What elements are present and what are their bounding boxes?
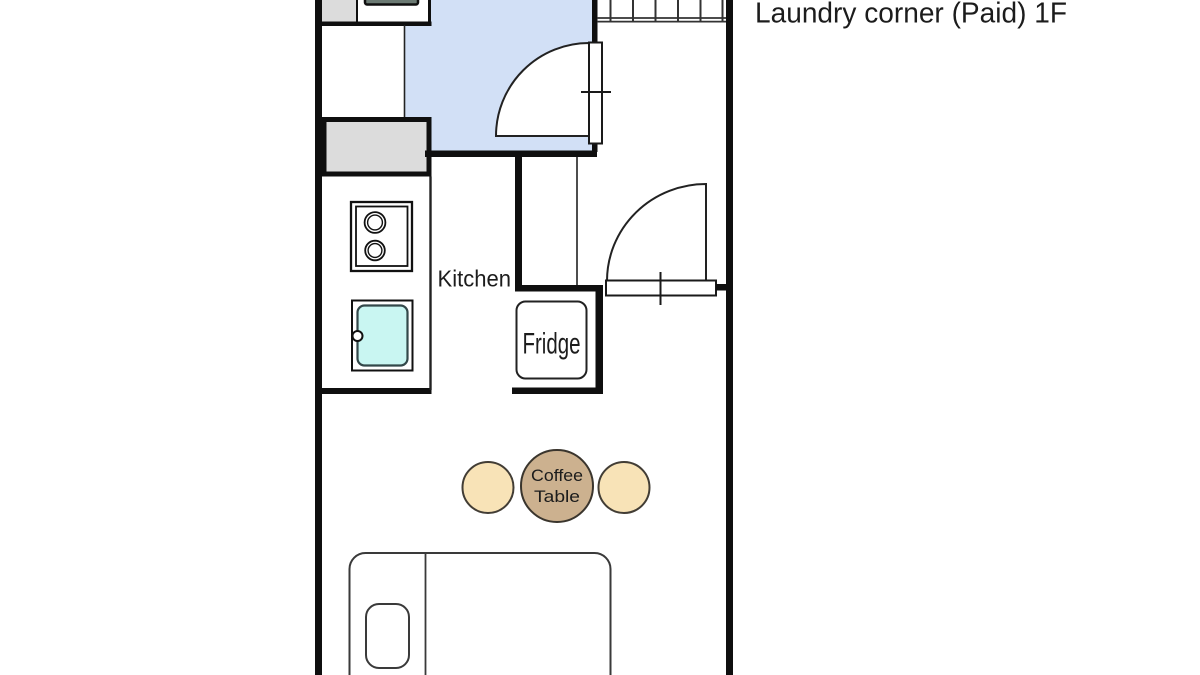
svg-text:Kitchen: Kitchen: [438, 266, 512, 292]
svg-text:Laundry corner (Paid) 1F: Laundry corner (Paid) 1F: [755, 0, 1067, 30]
svg-text:Coffee: Coffee: [531, 466, 583, 485]
svg-text:Fridge: Fridge: [523, 328, 581, 361]
svg-text:Table: Table: [534, 487, 580, 506]
